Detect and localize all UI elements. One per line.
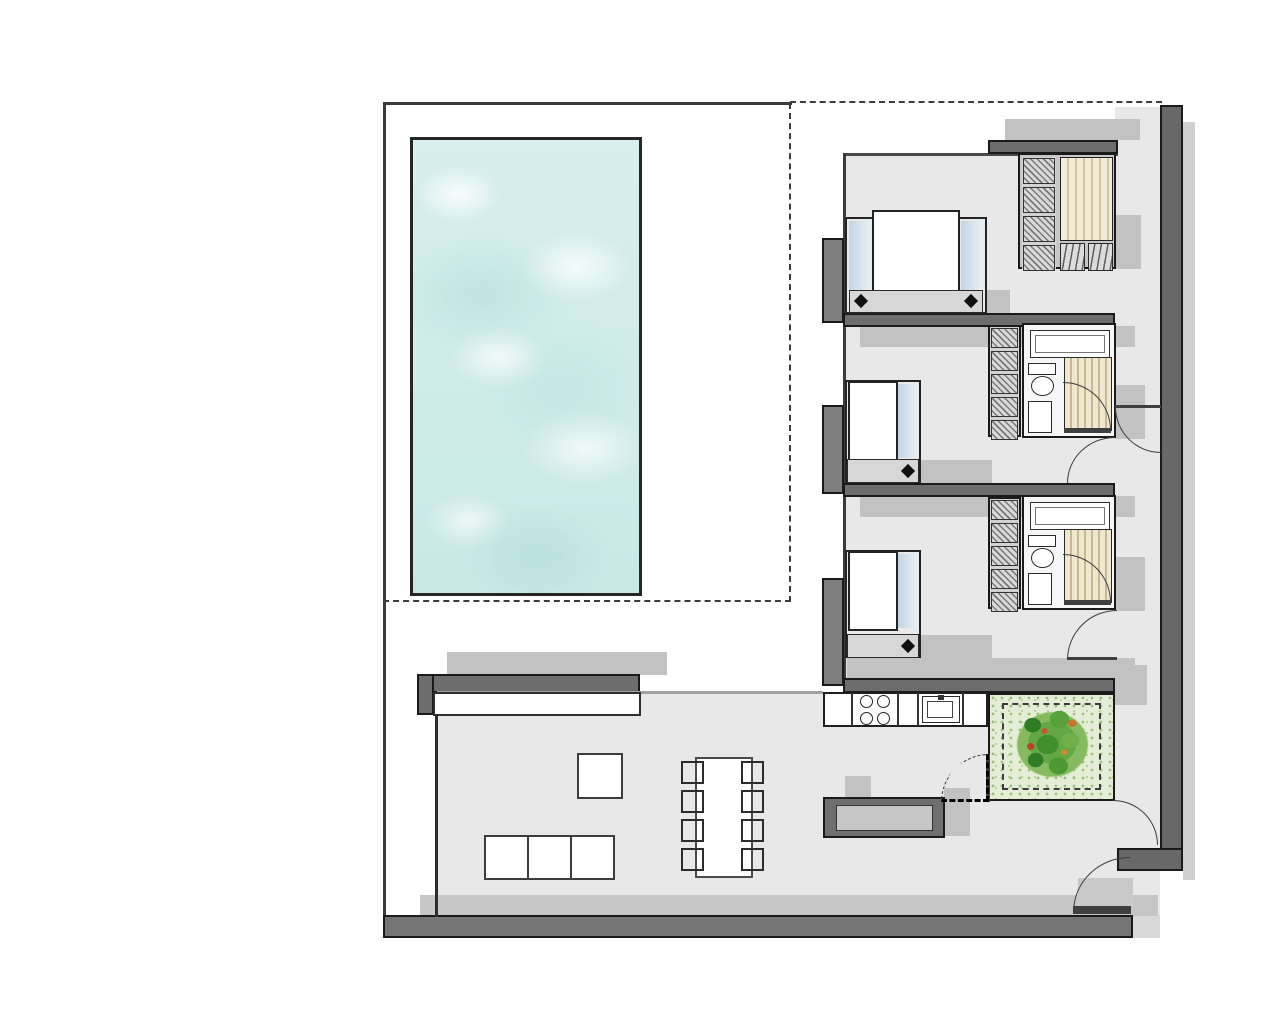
wardrobe-drawer (1088, 243, 1113, 271)
bathroom-sink-counter (1030, 330, 1110, 358)
dining-chair (681, 848, 704, 871)
wardrobe-shelf-cell (991, 592, 1018, 612)
sideboard-wall-stub (417, 674, 434, 715)
wardrobe-drawer (1060, 243, 1085, 271)
wardrobe-shelf-cell (991, 420, 1018, 440)
dining-chair (681, 790, 704, 813)
wardrobe-shelf-cell (991, 351, 1018, 371)
wardrobe-master (1018, 153, 1116, 269)
wardrobe-column-bedroom2 (988, 325, 1021, 437)
bathroom-sink-counter (1030, 502, 1110, 530)
toilet-tank (1028, 363, 1056, 375)
counter-divider (897, 693, 899, 726)
cast-shadow (1005, 119, 1140, 140)
cast-shadow (1115, 665, 1147, 705)
wardrobe-shelf-cell (991, 546, 1018, 566)
bench-seat (836, 805, 933, 831)
window-pier (822, 238, 844, 323)
cooktop-burner (877, 712, 890, 725)
terrace-boundary-top (383, 102, 792, 105)
bidet (1028, 573, 1052, 605)
living-glass-wall-left (435, 692, 438, 917)
toilet-tank (1028, 535, 1056, 547)
cast-shadow (920, 635, 992, 658)
terrace-boundary-left (383, 102, 386, 918)
floor-plan (0, 0, 1280, 1024)
wardrobe-shelf-cell (1023, 158, 1055, 184)
courtyard (988, 693, 1115, 801)
dining-chair (741, 790, 764, 813)
sofa-seat (484, 835, 529, 880)
bed-pillow (849, 221, 871, 291)
wardrobe-shelf-cell (991, 523, 1018, 543)
roof-line-top-dashed (790, 101, 1162, 104)
side-table (577, 753, 623, 799)
terrace-boundary-right-dashed (789, 103, 792, 602)
wardrobe-hanging-section (1060, 157, 1113, 241)
bed-pillow (898, 384, 918, 458)
counter-divider (962, 693, 964, 726)
wardrobe-shelf-cell (1023, 245, 1055, 271)
cooktop-burner (860, 695, 873, 708)
sofa-seat (570, 835, 615, 880)
dining-chair (741, 761, 764, 784)
bed-pillow (961, 221, 983, 291)
kitchen-sink (922, 696, 960, 723)
toilet-bowl (1031, 376, 1054, 396)
swimming-pool (410, 137, 642, 596)
sofa-seat (527, 835, 572, 880)
dining-chairs-right (741, 761, 764, 877)
wardrobe-shelf-cell (991, 397, 1018, 417)
bed-duvet (848, 381, 898, 461)
cast-shadow (920, 460, 992, 483)
bottom-exterior-wall (383, 915, 1133, 938)
sink-basin-line (1035, 507, 1105, 525)
window-pier (822, 405, 844, 494)
wardrobe-shelf-cell (991, 374, 1018, 394)
wardrobe-shelf-column (1022, 157, 1056, 269)
window-pier (822, 578, 844, 686)
wardrobe-shelf-cell (1023, 216, 1055, 242)
wardrobe-shelf-cell (991, 500, 1018, 520)
dining-chair (681, 819, 704, 842)
counter-divider (917, 693, 919, 726)
sofa (486, 835, 615, 880)
sink-basin-line (1035, 335, 1105, 353)
cast-shadow (1115, 215, 1141, 269)
bed-pillow (898, 554, 918, 628)
sideboard-counter (433, 692, 641, 716)
dining-chair (741, 819, 764, 842)
cast-shadow (447, 652, 667, 675)
wardrobe-column-bedroom3 (988, 497, 1021, 609)
wardrobe-shelf-cell (1023, 187, 1055, 213)
terrace-boundary-bottom-dashed (383, 600, 791, 603)
bidet (1028, 401, 1052, 433)
cast-shadow (1183, 122, 1195, 880)
cast-shadow (847, 658, 1135, 679)
counter-divider (851, 693, 853, 726)
bed-duvet (848, 551, 898, 631)
sink-faucet (938, 695, 944, 700)
wardrobe-shelf-cell (991, 569, 1018, 589)
cooktop-burner (877, 695, 890, 708)
right-exterior-wall (1160, 105, 1183, 850)
cast-shadow (845, 776, 871, 797)
kitchen-back-wall (843, 678, 1115, 693)
wardrobe-drawer-row (1060, 243, 1113, 269)
dining-chairs-left (681, 761, 704, 877)
cast-shadow (420, 895, 1158, 916)
cast-shadow (1115, 557, 1145, 611)
cooktop-burner (860, 712, 873, 725)
dining-chair (741, 848, 764, 871)
sink-basin (927, 701, 953, 718)
wardrobe-header-wall (988, 140, 1118, 154)
wardrobe-shelf-cell (991, 328, 1018, 348)
entrance-floor-gap (1133, 915, 1160, 938)
cooktop (854, 695, 896, 725)
toilet-bowl (1031, 548, 1054, 568)
tree-icon (1003, 696, 1102, 793)
dining-chair (681, 761, 704, 784)
bed-footboard (849, 290, 983, 313)
